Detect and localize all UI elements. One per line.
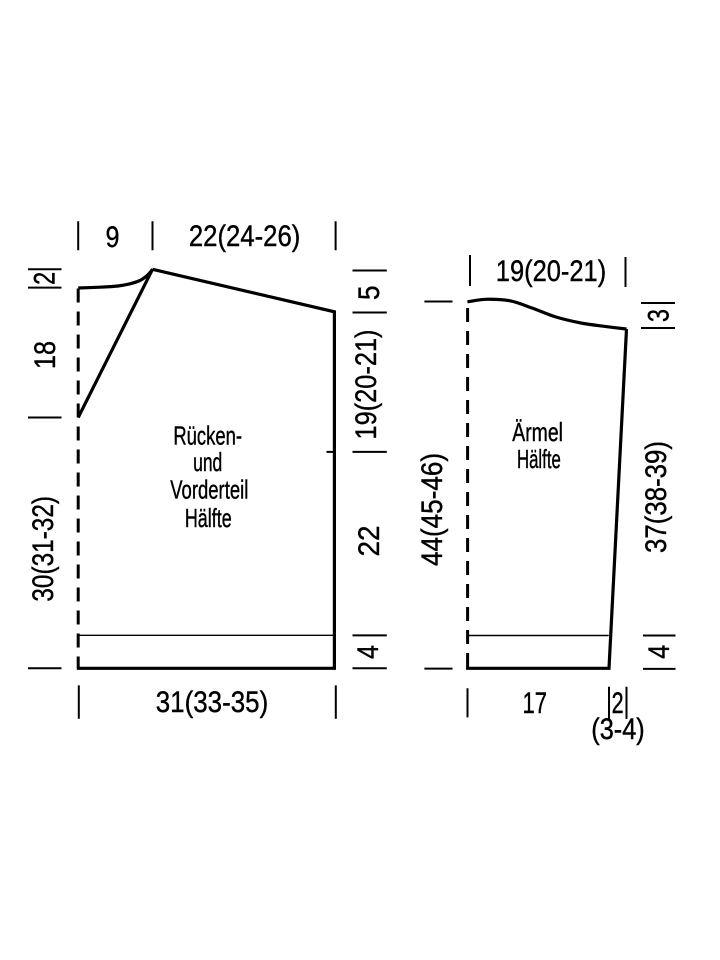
svg-text:4: 4 xyxy=(643,645,676,659)
svg-text:37(38-39): 37(38-39) xyxy=(640,441,673,553)
svg-text:4: 4 xyxy=(352,645,385,659)
svg-text:(3-4): (3-4) xyxy=(591,713,645,746)
svg-text:Rücken-: Rücken- xyxy=(173,421,242,451)
svg-text:19(20-21): 19(20-21) xyxy=(496,255,606,288)
svg-text:19(20-21): 19(20-21) xyxy=(350,330,383,440)
svg-text:Hälfte: Hälfte xyxy=(185,503,232,533)
svg-text:und: und xyxy=(193,447,222,477)
svg-text:2: 2 xyxy=(29,272,62,285)
svg-text:22(24-26): 22(24-26) xyxy=(189,220,301,253)
svg-text:Hälfte: Hälfte xyxy=(517,444,561,474)
svg-text:5: 5 xyxy=(353,286,386,301)
svg-text:44(45-46): 44(45-46) xyxy=(416,453,449,566)
svg-text:18: 18 xyxy=(29,341,62,369)
svg-text:3: 3 xyxy=(643,309,676,322)
svg-text:22: 22 xyxy=(353,526,386,557)
svg-text:31(33-35): 31(33-35) xyxy=(156,686,269,719)
svg-text:17: 17 xyxy=(522,687,547,720)
svg-text:Ärmel: Ärmel xyxy=(512,417,563,447)
svg-text:30(31-32): 30(31-32) xyxy=(27,496,60,602)
svg-text:9: 9 xyxy=(106,221,120,254)
svg-text:Vorderteil: Vorderteil xyxy=(170,475,248,505)
